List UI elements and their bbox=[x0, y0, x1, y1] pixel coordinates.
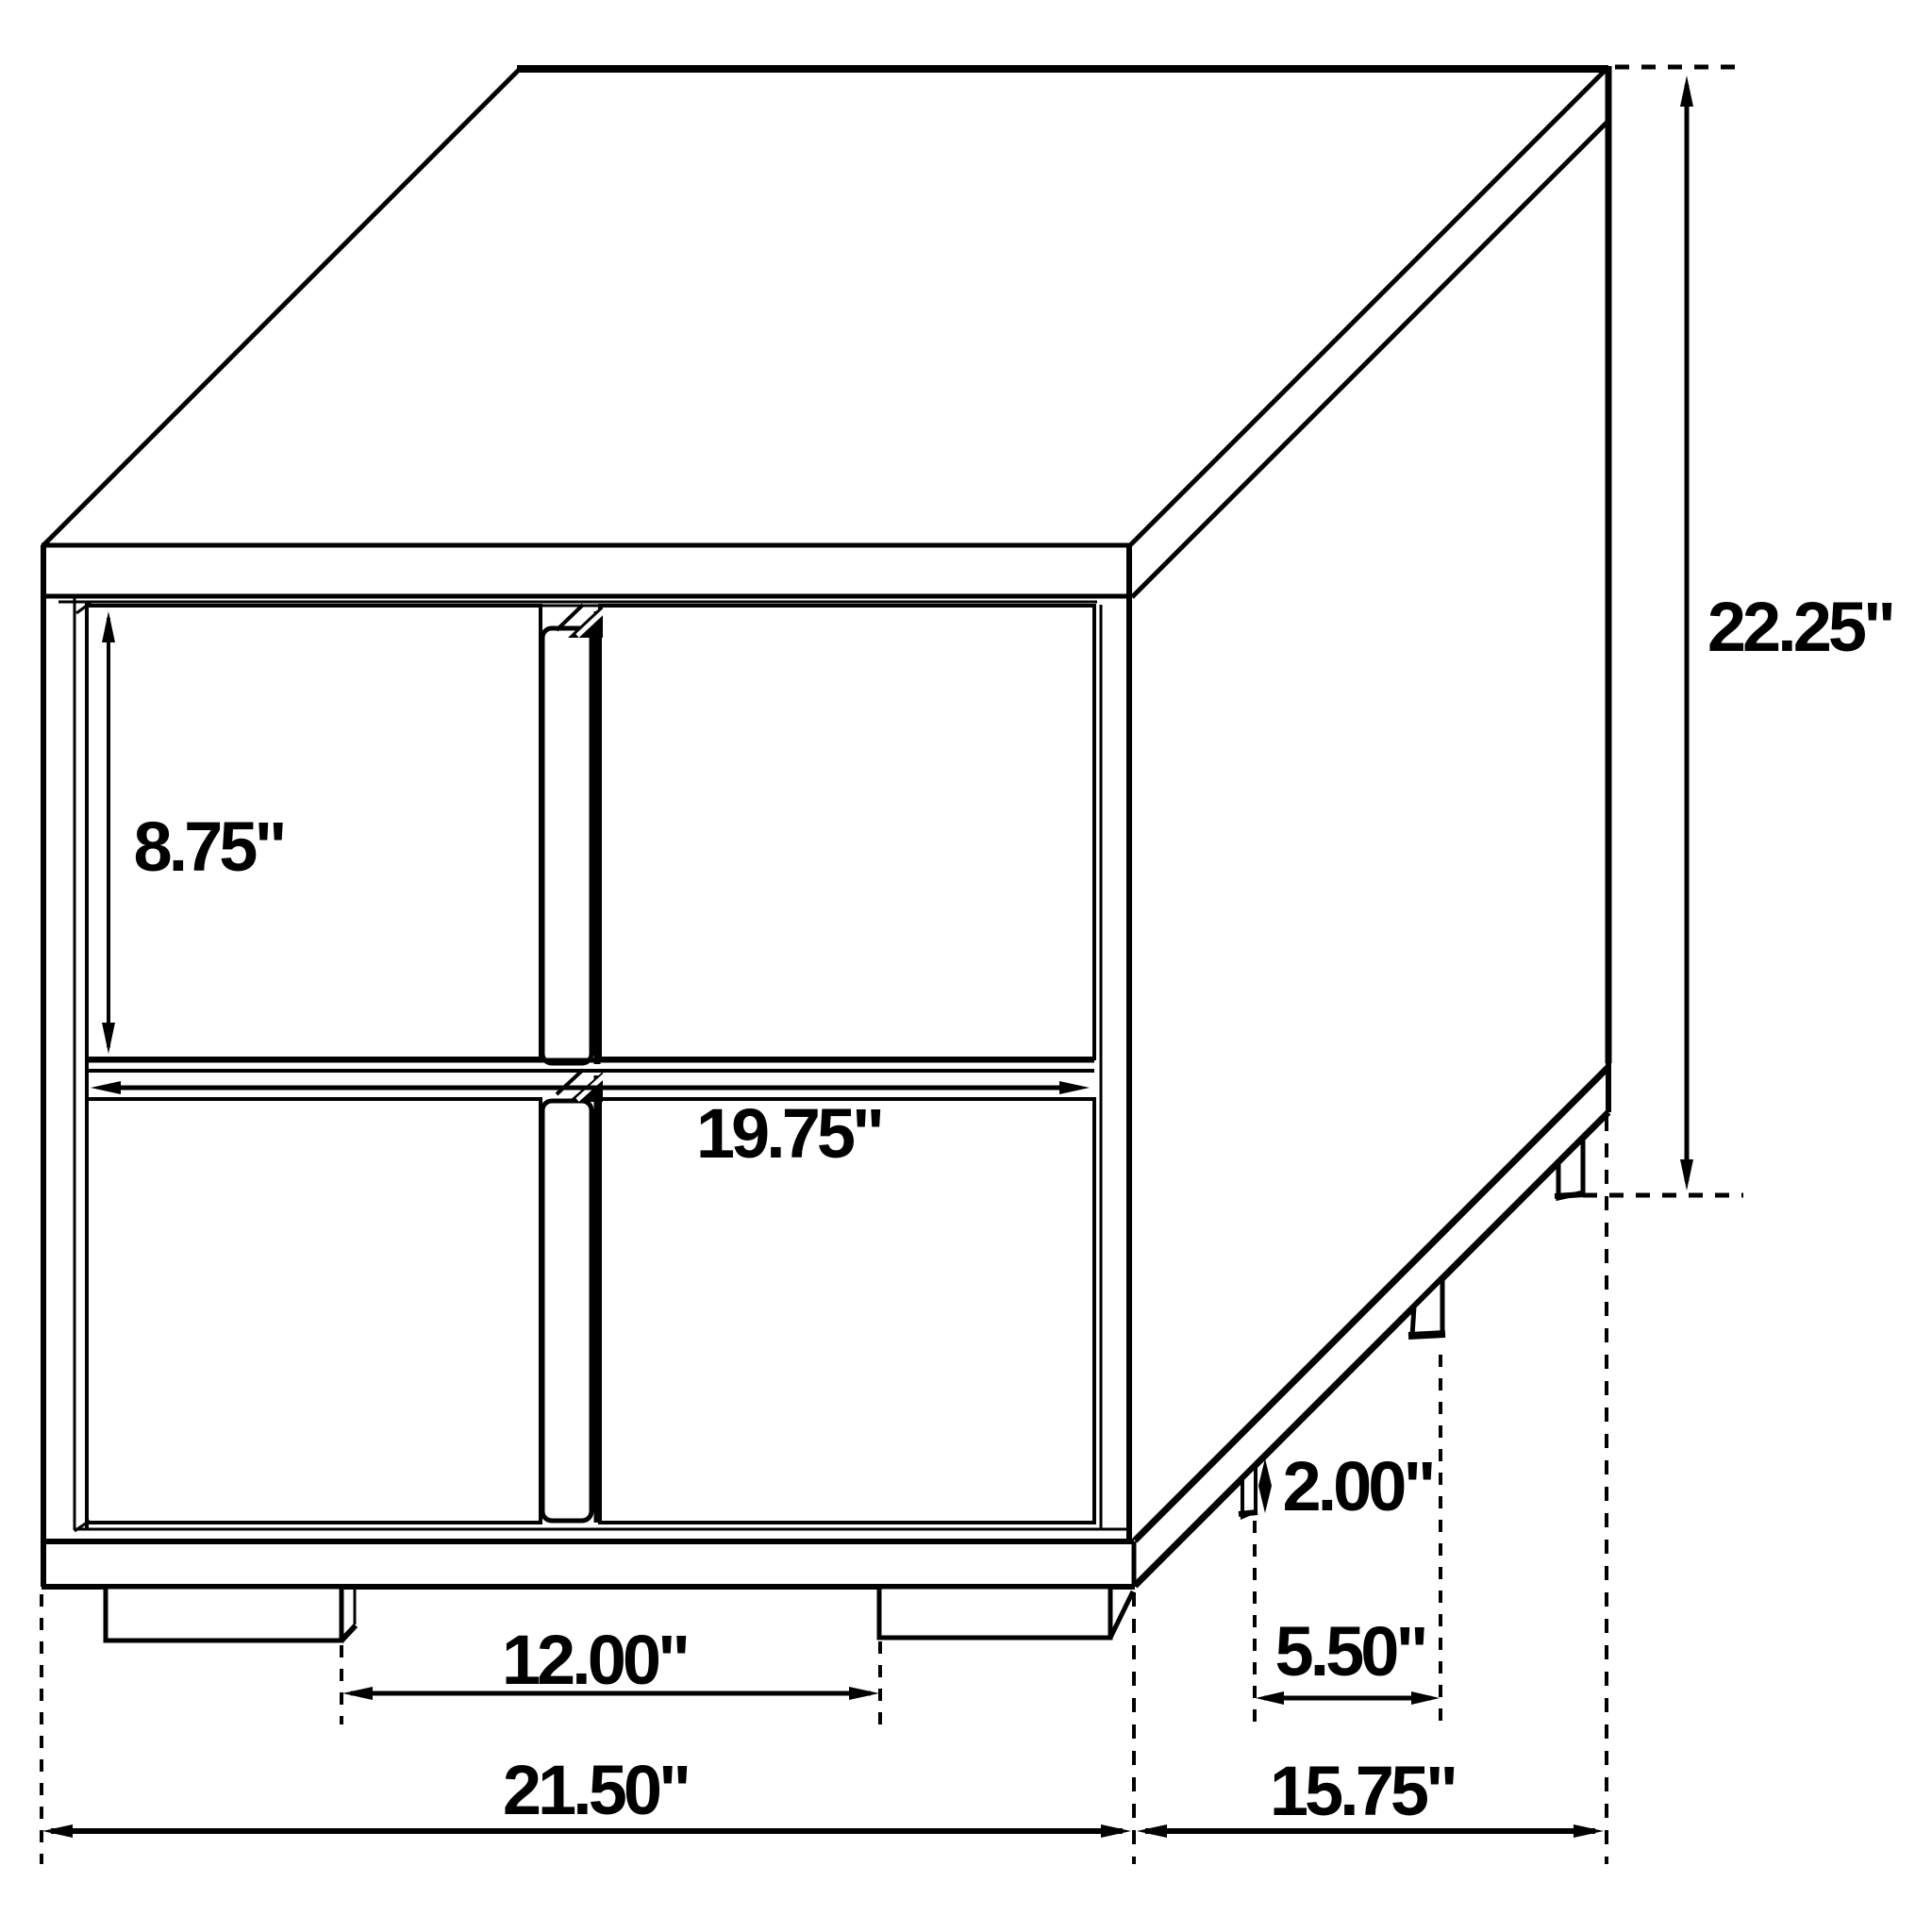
svg-text:12.00": 12.00" bbox=[502, 1621, 687, 1699]
svg-text:21.50": 21.50" bbox=[503, 1751, 688, 1829]
svg-text:22.25": 22.25" bbox=[1707, 588, 1892, 666]
svg-text:19.75": 19.75" bbox=[696, 1094, 881, 1173]
svg-text:15.75": 15.75" bbox=[1270, 1752, 1455, 1830]
svg-text:8.75": 8.75" bbox=[133, 808, 283, 886]
svg-text:2.00": 2.00" bbox=[1282, 1447, 1432, 1525]
svg-text:5.50": 5.50" bbox=[1274, 1612, 1424, 1690]
